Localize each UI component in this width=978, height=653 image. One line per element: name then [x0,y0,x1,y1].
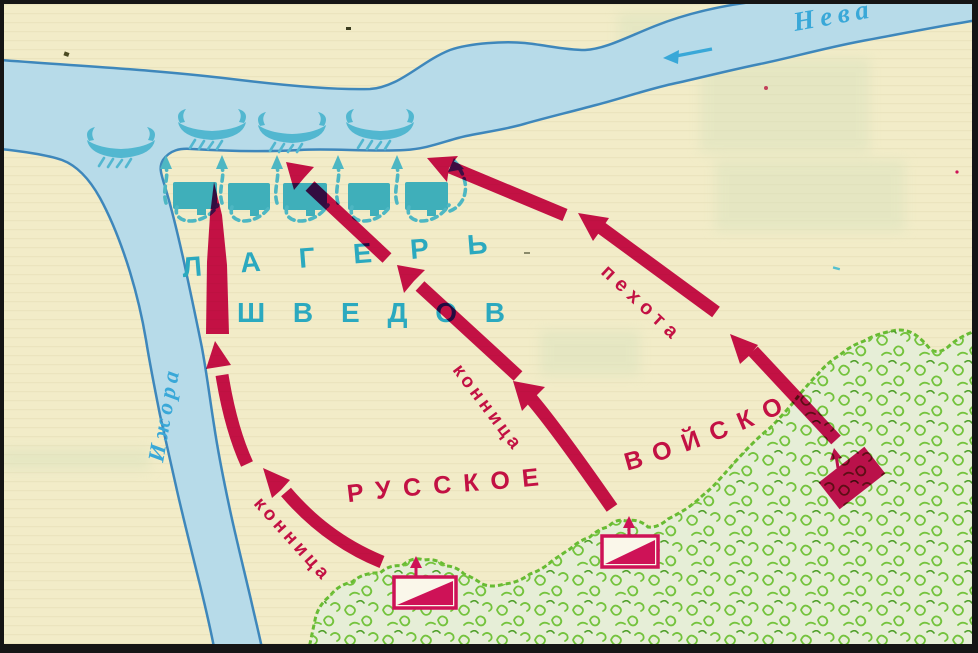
battle-map-page: ЛАГЕРЬ ШВЕДОВ Нева Ижора конница конница… [0,0,978,653]
battle-map: ЛАГЕРЬ ШВЕДОВ Нева Ижора конница конница… [0,0,978,653]
